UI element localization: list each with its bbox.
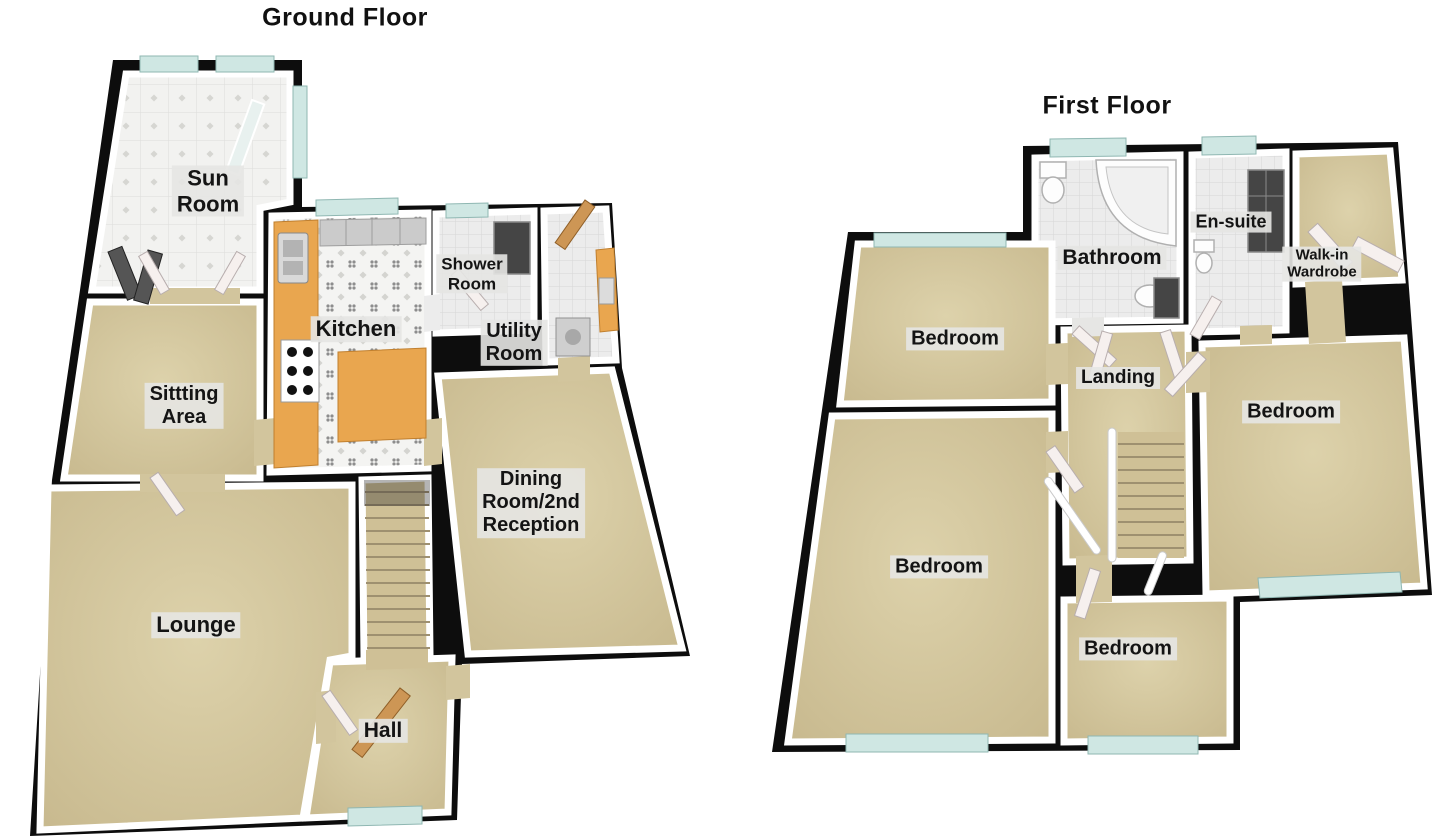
room-label-walk-in-wardrobe: Walk-in Wardrobe <box>1282 247 1361 282</box>
room-label-shower-room: Shower Room <box>436 254 507 293</box>
bathroom-shower <box>1154 278 1179 318</box>
room-label-kitchen: Kitchen <box>311 316 402 342</box>
bedroom-right-floor <box>1202 338 1424 594</box>
room-label-landing: Landing <box>1076 367 1160 389</box>
lounge-floor <box>40 485 352 830</box>
kitchen-hob <box>281 340 319 402</box>
ground-floor-title: Ground Floor <box>262 4 428 33</box>
kitchen-dining-opening <box>424 418 442 466</box>
room-label-dining-room: Dining Room/2nd Reception <box>477 468 585 538</box>
ensuite-bedroomR-opening <box>1240 325 1272 345</box>
kitchen-shower-opening <box>424 294 440 332</box>
ensuite-toilet-bowl <box>1196 253 1212 273</box>
bathroom-window <box>1050 138 1126 157</box>
room-label-bedroom-right: Bedroom <box>1242 400 1340 423</box>
kitchen-sink-basin1 <box>283 240 303 257</box>
sun-room-window-right <box>216 56 274 72</box>
ensuite-toilet-cistern <box>1194 240 1214 252</box>
stairs-hall-opening <box>366 648 428 670</box>
room-label-sun-room: Sun Room <box>172 165 244 216</box>
kitchen-island <box>338 348 426 442</box>
room-label-bedroom-bottom-centre: Bedroom <box>1079 637 1177 660</box>
room-label-en-suite: En-suite <box>1190 212 1271 233</box>
wardrobe-bedroomR-opening <box>1305 280 1346 344</box>
bathroom-toilet-bowl <box>1042 177 1064 203</box>
kitchen-sink-basin2 <box>283 261 303 275</box>
stairs-banister-vertical <box>1108 428 1116 562</box>
bedroom-bottom-centre-window <box>1088 736 1198 754</box>
floorplan-canvas: Ground Floor First Floor Sun RoomShower … <box>0 0 1456 840</box>
front-door-glazing <box>348 806 422 826</box>
washing-machine-door <box>565 329 581 345</box>
room-label-utility-room: Utility Room <box>481 320 548 366</box>
bedroom-bottom-left-window <box>846 734 988 752</box>
room-label-hall: Hall <box>359 719 408 743</box>
kitchen-window <box>316 198 398 216</box>
bedroom-top-left-floor <box>840 244 1052 404</box>
room-label-sitting-area: Sittting Area <box>145 383 224 429</box>
stairs-top-shadow <box>364 480 430 506</box>
bedroomTL-landing-opening <box>1046 343 1068 385</box>
hall-dining-opening <box>446 664 470 700</box>
bedroom-bottom-centre-floor <box>1064 598 1230 742</box>
room-label-bedroom-top-left: Bedroom <box>906 327 1004 350</box>
first-floor-title: First Floor <box>1042 92 1171 121</box>
bathroom-toilet-cistern <box>1040 162 1066 178</box>
utility-dining-opening <box>558 356 590 382</box>
en-suite-window <box>1202 136 1256 155</box>
sun-room-side-glazing <box>293 86 307 178</box>
bedroom-top-left-window <box>874 233 1006 247</box>
room-label-bathroom: Bathroom <box>1057 246 1166 270</box>
utility-sink <box>599 278 614 304</box>
room-label-bedroom-bottom-left: Bedroom <box>890 555 988 578</box>
sitting-kitchen-opening <box>254 418 276 466</box>
kitchen-wall-cabinets <box>320 218 426 246</box>
room-label-lounge: Lounge <box>151 612 240 638</box>
first-floor-plan <box>772 136 1432 754</box>
shower-room-window <box>446 203 488 218</box>
sun-room-window-left <box>140 56 198 72</box>
